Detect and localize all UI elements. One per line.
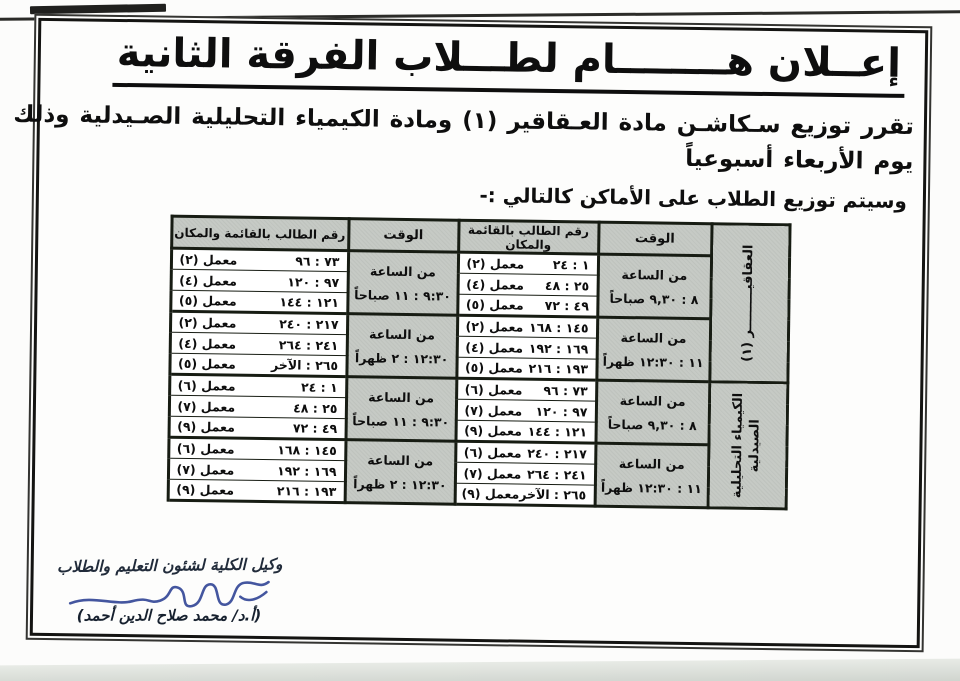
time-line: من الساعة [620,329,686,345]
room-cell: ٧٣ : ٩٦ معمل (٦) [456,378,596,401]
student-range: ٢٤١ : ٢٦٤ [527,466,587,482]
intro-line-2: يوم الأربعاء أسبوعياً [685,145,914,174]
student-range: ٢١٧ : ٢٤٠ [279,316,339,332]
student-range: ٢٦٥ : الآخر [271,357,338,373]
scanner-edge-shadow [0,659,960,681]
room-cell: ١ : ٢٤ معمل (٢) [458,252,598,275]
student-range: ٩٧ : ١٢٠ [535,403,587,419]
student-range: ٧٣ : ٩٦ [295,253,339,269]
student-range: ١٦٩ : ١٩٢ [529,340,589,356]
time-line: ٩:٣٠ : ١١ صباحاً [354,287,451,303]
student-range: ١٢١ : ١٤٤ [279,294,339,310]
students-header-right: رقم الطالب بالقائمة والمكان [458,220,598,254]
subject-cell-pharmacognosy: العقاقيـــــــــر (١) [709,224,789,383]
scan-artifact-mark [30,4,166,15]
time-header-left: الوقت [348,219,458,253]
student-range: ١٢١ : ١٤٤ [528,424,588,440]
room-cell: ٢٤١ : ٢٦٤ معمل (٧) [455,462,595,485]
lab-label: معمل (٩) [176,482,234,498]
student-range: ١ : ٢٤ [301,380,338,396]
room-cell: ١٢١ : ١٤٤ معمل (٩) [455,420,595,443]
lab-label: معمل (٧) [464,402,522,418]
room-cell: ٩٧ : ١٢٠ معمل (٤) [171,269,348,292]
lab-label: معمل (٥) [465,360,523,376]
lab-label: معمل (٦) [465,382,523,398]
lab-label: معمل (٦) [178,378,236,394]
time-cell-right-g3: من الساعة ٨ : ٩,٣٠ صباحاً [595,380,709,445]
student-range: ٩٧ : ١٢٠ [287,274,339,290]
time-cell-right-g4: من الساعة ١١ : ١٢:٣٠ ظهراً [595,443,709,508]
room-cell: ١٢١ : ١٤٤ معمل (٥) [170,290,347,313]
lab-label: معمل (٦) [464,445,522,461]
time-cell-left-g4: من الساعة ١٢:٣٠ : ٢ ظهراً [345,440,456,505]
lab-label: معمل (٢) [179,252,237,268]
time-line: ١١ : ١٢:٣٠ ظهراً [601,479,702,495]
room-cell: ٤٩ : ٧٢ معمل (٥) [457,294,597,317]
room-cell: ١٩٣ : ٢١٦ معمل (٥) [456,357,596,380]
room-cell: ١ : ٢٤ معمل (٦) [169,374,346,397]
lab-label: معمل (٩) [464,423,522,439]
distribution-note: وسيتم توزيع الطلاب على الأماكن كالتالي :… [39,177,907,213]
room-cell: ٢٥ : ٤٨ معمل (٧) [169,395,346,418]
lab-label: معمل (٥) [178,356,236,372]
student-range: ٤٩ : ٧٢ [293,420,337,436]
lab-label: معمل (٤) [466,276,524,292]
time-header-right: الوقت [598,222,711,256]
subject-rotated-wrap: العقاقيـــــــــر (١) [711,225,788,381]
lab-label: معمل (٩) [461,486,519,502]
student-range: ١ : ٢٤ [553,257,590,273]
student-range: ٢٥ : ٤٨ [545,277,589,293]
room-cell: ٧٣ : ٩٦ معمل (٢) [171,248,348,271]
time-line: ١٢:٣٠ : ٢ ظهراً [355,350,449,366]
time-cell-right-g2: من الساعة ١١ : ١٢:٣٠ ظهراً [596,317,710,382]
time-line: ٨ : ٩,٣٠ صباحاً [608,416,697,432]
time-line: من الساعة [619,455,685,471]
student-range: ١٩٣ : ٢١٦ [277,483,337,499]
student-range: ٢٦٥ : الآخر [519,487,586,503]
time-line: من الساعة [367,452,433,468]
students-header-left: رقم الطالب بالقائمة والمكان [171,216,348,250]
room-cell: ٢١٧ : ٢٤٠ معمل (٦) [455,441,595,464]
time-line: ٩:٣٠ : ١١ صباحاً [352,413,449,429]
time-line: ١١ : ١٢:٣٠ ظهراً [603,353,704,369]
room-cell: ١٤٥ : ١٦٨ معمل (٢) [457,315,597,338]
subject-label-pharmacognosy: العقاقيـــــــــر (١) [740,245,759,362]
student-range: ٢١٧ : ٢٤٠ [527,446,587,462]
signer-name: (أ.د/ محمد صلاح الدين أحمد) [47,607,291,625]
signature-block: وكيل الكلية لشئون التعليم والطلاب (أ.د/ … [47,555,292,626]
student-range: ١٩٣ : ٢١٦ [528,361,588,377]
subject-line-2: الصيدلية [747,393,765,499]
lab-label: معمل (٤) [179,272,237,288]
lab-label: معمل (٩) [177,419,235,435]
room-cell: ٢٥ : ٤٨ معمل (٤) [458,273,598,296]
intro-text: تقرر توزيع سـكاشـن مادة العـقاقير (١) وم… [63,98,914,179]
time-cell-left-g3: من الساعة ٩:٣٠ : ١١ صباحاً [345,377,456,442]
subject-line-1: الكيمياء التحليلية [730,392,748,498]
room-cell: ٤٩ : ٧٢ معمل (٩) [169,416,346,439]
page-frame-inner: إعــلان هــــــــام لطـــلاب الفرقة الثا… [30,18,929,648]
lab-label: معمل (٤) [465,339,523,355]
student-range: ١٤٥ : ١٦٨ [529,320,589,336]
room-cell: ١٦٩ : ١٩٢ معمل (٧) [168,458,345,481]
time-line: ١٢:٣٠ : ٢ ظهراً [353,476,447,492]
student-range: ٢٥ : ٤٨ [293,400,337,416]
student-range: ٧٣ : ٩٦ [543,383,587,399]
lab-label: معمل (٥) [466,297,524,313]
time-cell-left-g2: من الساعة ١٢:٣٠ : ٢ ظهراً [346,314,457,379]
student-range: ١٤٥ : ١٦٨ [277,442,337,458]
room-cell: ٢٤١ : ٢٦٤ معمل (٤) [170,332,347,355]
time-line: من الساعة [621,266,687,282]
subject-label-analytical-chemistry: الكيمياء التحليلية الصيدلية [730,392,765,498]
time-line: من الساعة [368,389,434,405]
time-line: من الساعة [620,392,686,408]
subject-cell-analytical-chemistry: الكيمياء التحليلية الصيدلية [708,382,788,509]
lab-label: معمل (٢) [465,319,523,335]
room-cell: ٩٧ : ١٢٠ معمل (٧) [456,399,596,422]
student-range: ١٦٩ : ١٩٢ [277,463,337,479]
subject-rotated-wrap: الكيمياء التحليلية الصيدلية [709,383,786,507]
schedule-table: العقاقيـــــــــر (١) الوقت رقم الطالب ب… [166,215,791,511]
signer-role: وكيل الكلية لشئون التعليم والطلاب [48,555,292,576]
page-frame: إعــلان هــــــــام لطـــلاب الفرقة الثا… [26,14,933,652]
room-cell: ٢٦٥ : الآخر معمل (٥) [169,353,346,376]
time-cell-right-g1: من الساعة ٨ : ٩,٣٠ صباحاً [597,254,711,319]
lab-label: معمل (٧) [176,461,234,477]
student-range: ٢٤١ : ٢٦٤ [279,337,339,353]
announcement-photo: إعــلان هــــــــام لطـــلاب الفرقة الثا… [0,0,960,681]
time-cell-left-g1: من الساعة ٩:٣٠ : ١١ صباحاً [347,251,458,316]
time-line: من الساعة [370,263,436,279]
lab-label: معمل (٧) [463,465,521,481]
intro-line-1: تقرر توزيع سـكاشـن مادة العـقاقير (١) وم… [13,101,914,140]
time-line: من الساعة [369,326,435,342]
time-line: ٨ : ٩,٣٠ صباحاً [609,290,698,306]
lab-label: معمل (٢) [179,315,237,331]
lab-label: معمل (٥) [179,293,237,309]
lab-label: معمل (٧) [177,398,235,414]
room-cell: ٢٦٥ : الآخر معمل (٩) [455,483,595,506]
lab-label: معمل (٢) [466,256,524,272]
room-cell: ١٤٥ : ١٦٨ معمل (٦) [168,437,345,460]
page-title: إعــلان هــــــــام لطـــلاب الفرقة الثا… [66,29,951,98]
lab-label: معمل (٤) [178,335,236,351]
student-range: ٤٩ : ٧٢ [545,298,589,314]
page-title-text: إعــلان هــــــــام لطـــلاب الفرقة الثا… [112,30,905,98]
lab-label: معمل (٦) [177,441,235,457]
room-cell: ٢١٧ : ٢٤٠ معمل (٢) [170,311,347,334]
room-cell: ١٦٩ : ١٩٢ معمل (٤) [457,336,597,359]
room-cell: ١٩٣ : ٢١٦ معمل (٩) [168,479,345,502]
